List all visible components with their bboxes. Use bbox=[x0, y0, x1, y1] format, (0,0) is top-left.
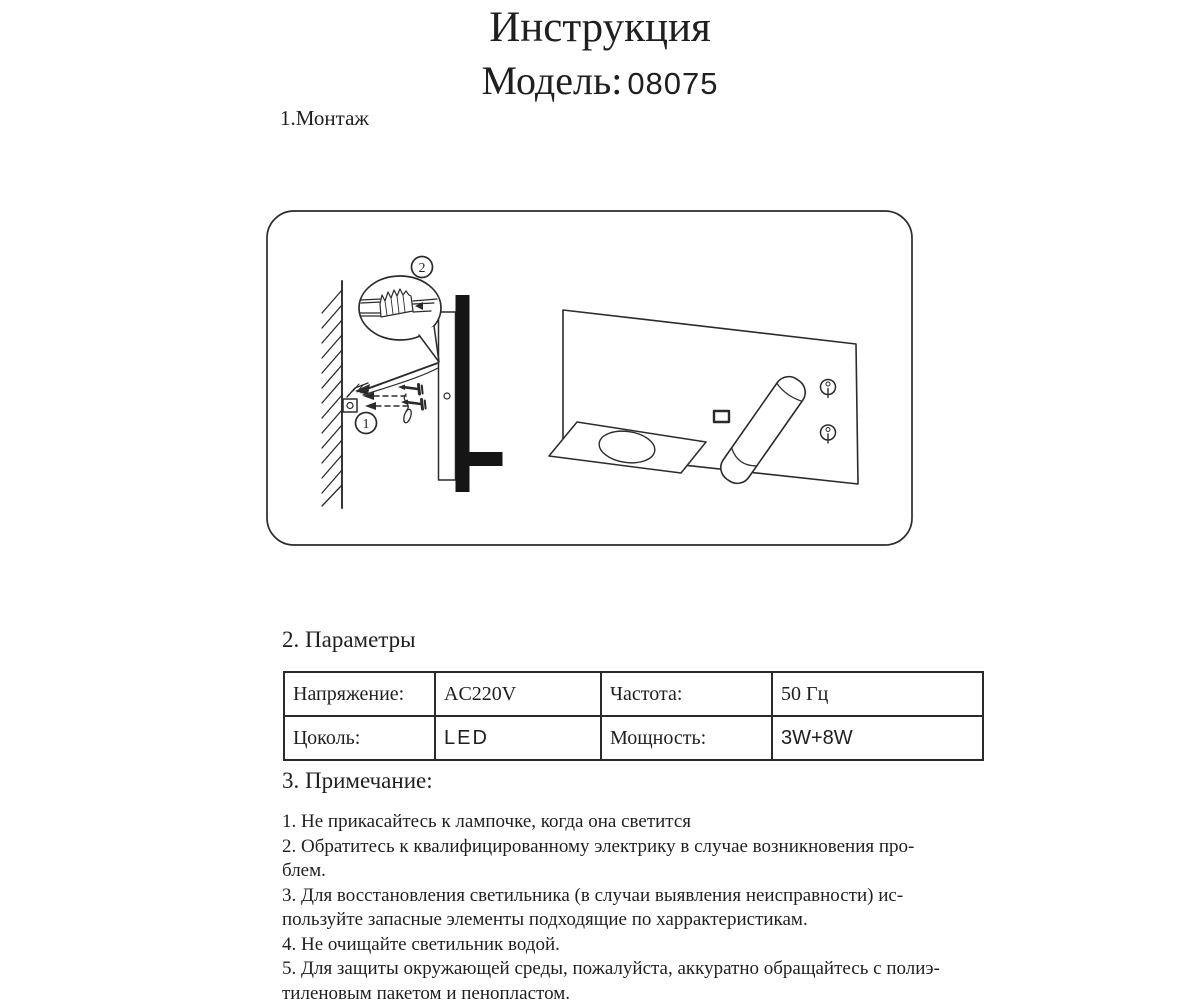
model-number: 08075 bbox=[627, 66, 718, 101]
model-line: Модель:08075 bbox=[0, 60, 1200, 102]
param-label-power: Мощность: bbox=[601, 716, 772, 760]
table-row: Цоколь: LED Мощность: 3W+8W bbox=[284, 716, 983, 760]
usb-port bbox=[714, 411, 729, 422]
param-label-frequency: Частота: bbox=[601, 672, 772, 716]
step-1-label: 1 bbox=[363, 417, 370, 432]
note-line: 5. Для защиты окружающей среды, пожалуйс… bbox=[282, 957, 982, 982]
param-label-voltage: Напряжение: bbox=[284, 672, 435, 716]
lamp-back-plate bbox=[439, 312, 456, 480]
param-value-power: 3W+8W bbox=[772, 716, 983, 760]
parameters-heading: 2. Параметры bbox=[282, 627, 416, 653]
parameters-table: Напряжение: AC220V Частота: 50 Гц Цоколь… bbox=[283, 671, 984, 761]
note-line: пользуйте запасные элементы подходящие п… bbox=[282, 908, 982, 933]
mounting-bracket bbox=[343, 399, 357, 412]
table-row: Напряжение: AC220V Частота: 50 Гц bbox=[284, 672, 983, 716]
param-label-socket: Цоколь: bbox=[284, 716, 435, 760]
note-line: 2. Обратитесь к квалифицированному элект… bbox=[282, 835, 982, 860]
notes-list: 1. Не прикасайтесь к лампочке, когда она… bbox=[282, 810, 982, 1006]
param-value-voltage: AC220V bbox=[435, 672, 601, 716]
note-line: тиленовым пакетом и пенопластом. bbox=[282, 982, 982, 1006]
note-line: 1. Не прикасайтесь к лампочке, когда она… bbox=[282, 810, 982, 835]
notes-heading: 3. Примечание: bbox=[282, 768, 433, 794]
page-title: Инструкция bbox=[0, 4, 1200, 52]
note-line: блем. bbox=[282, 859, 982, 884]
mounting-diagram: 2 1 bbox=[240, 195, 940, 565]
param-value-socket: LED bbox=[435, 716, 601, 760]
lamp-shelf-side bbox=[456, 452, 503, 466]
param-value-frequency: 50 Гц bbox=[772, 672, 983, 716]
mounting-heading: 1.Монтаж bbox=[280, 106, 369, 131]
instruction-sheet: { "header": { "title": "Инструкция", "mo… bbox=[0, 0, 1200, 1000]
note-line: 3. Для восстановления светильника (в слу… bbox=[282, 884, 982, 909]
note-line: 4. Не очищайте светильник водой. bbox=[282, 933, 982, 958]
model-label: Модель: bbox=[481, 58, 622, 103]
step-2-label: 2 bbox=[419, 261, 426, 276]
